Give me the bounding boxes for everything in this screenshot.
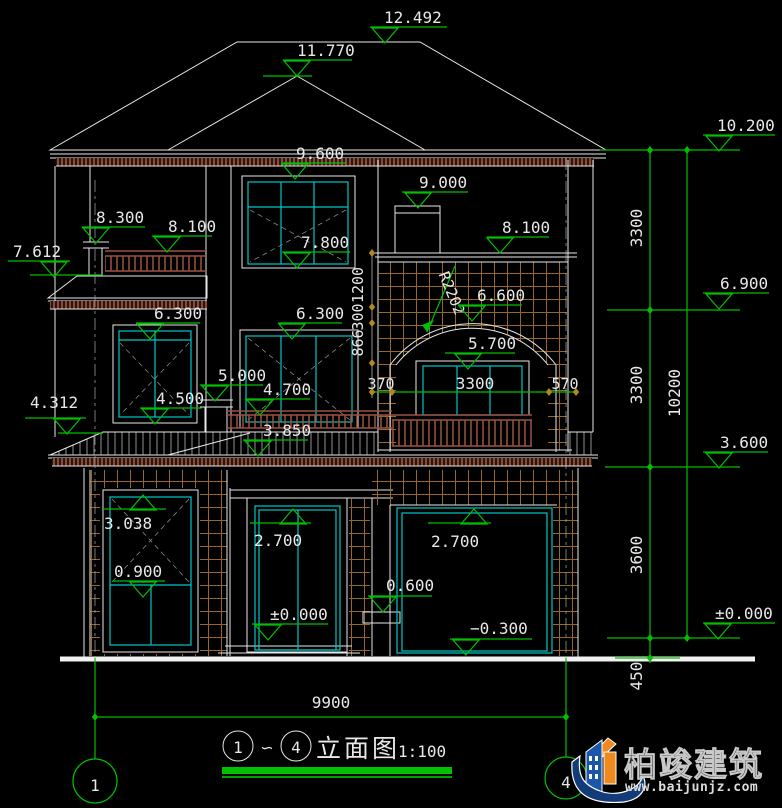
- svg-text:9.600: 9.600: [296, 144, 344, 163]
- marker-7800: 7.800: [282, 233, 350, 268]
- marker-10200: 10.200: [703, 116, 775, 151]
- title-text: 立面图: [316, 734, 400, 763]
- dim-3600: 3600: [627, 536, 646, 575]
- svg-text:6.600: 6.600: [477, 286, 525, 305]
- drawing-title: 1 ∽ 4 立面图 1:100: [222, 731, 452, 778]
- brick-wall-right: [553, 505, 578, 656]
- marker-5000: 5.000: [200, 366, 266, 401]
- marker-4312: 4.312: [25, 393, 103, 434]
- marker-ridge: 12.492: [370, 8, 447, 43]
- title-scale: 1:100: [398, 742, 446, 761]
- bottom-dimension: 1 4: [73, 658, 587, 803]
- svg-text:3.600: 3.600: [720, 433, 768, 452]
- svg-text:−0.300: −0.300: [470, 619, 528, 638]
- marker-0000-right: ±0.000: [703, 604, 775, 639]
- logo-website: www.baijunjz.com: [625, 780, 758, 795]
- logo-company-name: 柏竣建筑: [624, 745, 764, 784]
- balcony-rail-upper-left: [83, 242, 206, 276]
- marker-4500: 4.500: [140, 389, 204, 424]
- svg-text:±0.000: ±0.000: [270, 605, 328, 624]
- dim-3300-top: 3300: [627, 209, 646, 248]
- svg-text:6.300: 6.300: [296, 304, 344, 323]
- svg-text:8.100: 8.100: [168, 217, 216, 236]
- title-underline-thin: [222, 776, 452, 778]
- marker-0000-door: ±0.000: [252, 605, 328, 640]
- dim-1200: 1200: [349, 267, 367, 303]
- cad-elevation-drawing: R2202 12.492 11.770 9.600 9.000 10.200 8…: [0, 0, 782, 808]
- svg-text:7.612: 7.612: [13, 242, 61, 261]
- title-underline-thick: [222, 767, 452, 774]
- marker-minus-0300: −0.300: [450, 619, 532, 655]
- marker-6300-mid: 6.300: [278, 304, 344, 339]
- entry-door: [247, 498, 347, 652]
- title-axis-start: 1: [233, 738, 243, 757]
- svg-text:2.700: 2.700: [254, 531, 302, 550]
- svg-text:12.492: 12.492: [384, 8, 442, 27]
- axis-bubble-1-label: 1: [90, 776, 100, 795]
- svg-text:0.900: 0.900: [114, 562, 162, 581]
- marker-2700-garage: 2.700: [428, 509, 491, 551]
- dim-370: 370: [367, 375, 394, 393]
- svg-text:5.000: 5.000: [218, 366, 266, 385]
- dim-866: 866: [349, 329, 367, 356]
- dim-450: 450: [627, 662, 646, 691]
- svg-text:3.850: 3.850: [263, 421, 311, 440]
- svg-text:6.900: 6.900: [720, 274, 768, 293]
- marker-0600: 0.600: [368, 576, 434, 612]
- dim-3300-mid: 3300: [627, 366, 646, 405]
- svg-text:0.600: 0.600: [386, 576, 434, 595]
- svg-text:4.500: 4.500: [156, 389, 204, 408]
- svg-text:±0.000: ±0.000: [715, 604, 773, 623]
- svg-text:8.300: 8.300: [96, 208, 144, 227]
- slab-tile-band: [52, 458, 592, 466]
- dim-300: 300: [349, 303, 367, 330]
- elevation-canvas: R2202 12.492 11.770 9.600 9.000 10.200 8…: [0, 0, 782, 808]
- svg-text:10.200: 10.200: [717, 116, 775, 135]
- svg-text:2.700: 2.700: [431, 532, 479, 551]
- svg-text:11.770: 11.770: [297, 41, 355, 60]
- dim-570: 570: [551, 375, 578, 393]
- title-tilde: ∽: [260, 738, 273, 757]
- dim-9900: 9900: [312, 693, 351, 712]
- brick-over-garage: [372, 470, 578, 505]
- brand-logo: 柏竣建筑 www.baijunjz.com: [572, 738, 764, 802]
- window-2f-large: [242, 176, 355, 268]
- svg-text:4.312: 4.312: [30, 393, 78, 412]
- marker-6900: 6.900: [703, 274, 769, 309]
- svg-text:8.100: 8.100: [502, 218, 550, 237]
- svg-text:4.700: 4.700: [263, 380, 311, 399]
- svg-text:7.800: 7.800: [301, 233, 349, 252]
- axis-bubble-4-label: 4: [561, 773, 571, 792]
- title-axis-end: 4: [291, 738, 301, 757]
- dim-3300-arch: 3300: [456, 374, 495, 393]
- marker-8100-left: 8.100: [152, 217, 216, 252]
- svg-text:5.700: 5.700: [468, 334, 516, 353]
- marker-8100-right: 8.100: [487, 218, 550, 253]
- marker-chimney: 9.000: [402, 173, 468, 208]
- brick-pier-mid: [349, 498, 370, 656]
- dim-10200: 10200: [665, 369, 684, 417]
- marker-3600: 3.600: [703, 433, 768, 468]
- svg-text:6.300: 6.300: [154, 304, 202, 323]
- svg-text:9.000: 9.000: [419, 173, 467, 192]
- svg-text:3.038: 3.038: [104, 514, 152, 533]
- marker-front-hip: 11.770: [263, 41, 355, 76]
- marker-8300: 8.300: [82, 208, 145, 243]
